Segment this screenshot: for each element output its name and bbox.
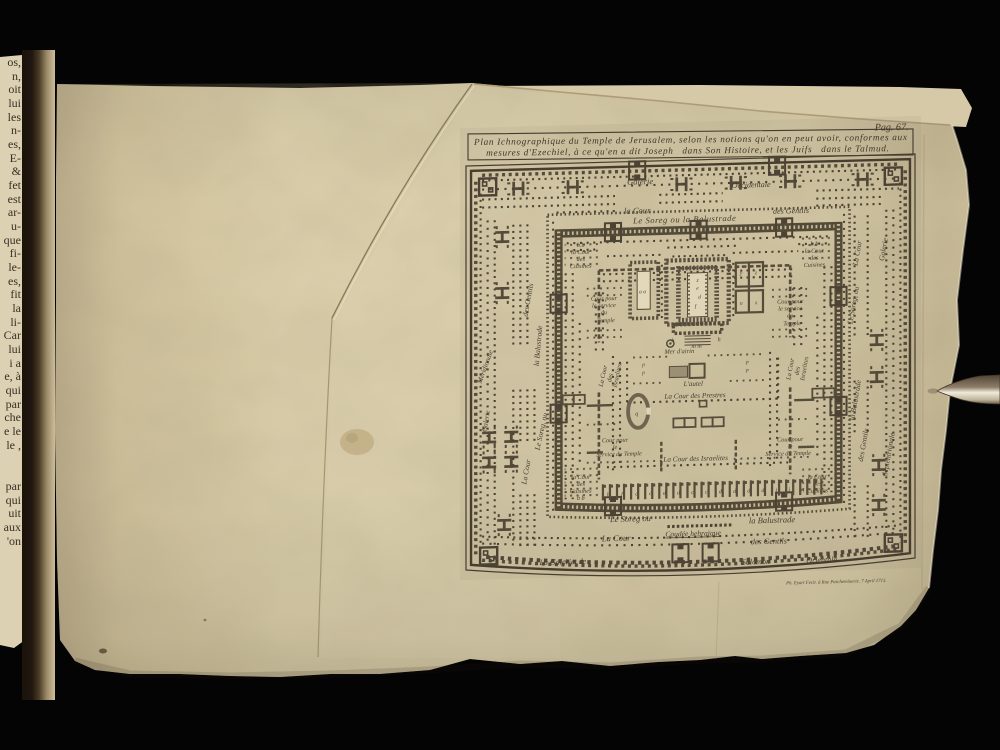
svg-text:Galerie: Galerie	[627, 176, 653, 187]
svg-text:es,: es,	[8, 274, 21, 288]
svg-text:le ,: le ,	[6, 438, 21, 452]
svg-text:par: par	[6, 397, 21, 411]
svg-text:x: x	[754, 300, 758, 306]
svg-text:e le: e le	[4, 424, 21, 438]
svg-text:es,: es,	[8, 137, 21, 151]
svg-text:Coudée hebraïque: Coudée hebraïque	[665, 528, 721, 538]
svg-text:les: les	[8, 110, 22, 124]
svg-text:a a: a a	[639, 289, 646, 295]
svg-text:p: p	[641, 362, 645, 368]
svg-text:qui: qui	[6, 493, 22, 507]
svg-text:aux: aux	[4, 520, 21, 534]
svg-text:Orientale: Orientale	[806, 555, 837, 565]
svg-text:des Gentils: des Gentils	[751, 536, 787, 546]
svg-text:'on: 'on	[7, 534, 21, 548]
svg-text:La Galerie de: La Galerie de	[538, 557, 586, 567]
svg-text:est: est	[8, 192, 22, 206]
svg-text:que: que	[4, 233, 21, 247]
svg-text:La Cour des Prestres: La Cour des Prestres	[663, 391, 725, 401]
svg-text:fet: fet	[8, 178, 21, 192]
svg-text:fit: fit	[10, 287, 21, 301]
svg-text:os,: os,	[7, 55, 21, 69]
svg-text:la: la	[12, 301, 21, 315]
svg-text:lui: lui	[8, 96, 21, 110]
svg-text:q: q	[635, 411, 638, 417]
svg-text:L'autel: L'autel	[682, 380, 703, 389]
svg-text:Service du Temple: Service du Temple	[765, 450, 811, 458]
svg-text:du: du	[601, 309, 607, 316]
svg-text:Salomon: Salomon	[742, 557, 770, 567]
svg-text:Service du Temple: Service du Temple	[596, 450, 642, 458]
svg-text:La Cour: La Cour	[601, 533, 631, 544]
svg-text:la Balustrade: la Balustrade	[749, 514, 795, 525]
svg-text:Occidentale: Occidentale	[732, 180, 771, 190]
svg-text:Pag. 67.: Pag. 67.	[874, 122, 909, 133]
svg-text:oit: oit	[8, 82, 21, 96]
svg-text:Mer d'airin: Mer d'airin	[663, 348, 694, 356]
svg-text:uit: uit	[8, 506, 21, 520]
svg-text:des Gentils: des Gentils	[773, 206, 809, 216]
svg-text:y: y	[739, 271, 743, 277]
svg-text:E-: E-	[10, 151, 21, 165]
svg-text:n-: n-	[11, 123, 21, 137]
svg-text:p: p	[745, 367, 749, 373]
svg-text:le-: le-	[8, 260, 21, 274]
svg-text:par: par	[6, 479, 21, 493]
svg-text:Cuisines: Cuisines	[570, 263, 592, 271]
svg-text:d: d	[698, 295, 701, 301]
svg-text:Cuisines: Cuisines	[804, 261, 826, 269]
svg-text:b b: b b	[577, 495, 585, 502]
svg-text:Car: Car	[4, 328, 21, 342]
svg-text:i a: i a	[9, 356, 21, 370]
svg-text:h: h	[718, 337, 721, 343]
svg-text:u: u	[740, 301, 743, 307]
svg-text:e, à: e, à	[4, 369, 21, 383]
svg-text:li-: li-	[10, 315, 21, 329]
svg-text:n,: n,	[12, 69, 21, 83]
svg-text:ar-: ar-	[8, 205, 21, 219]
svg-text:fi-: fi-	[10, 246, 21, 260]
svg-text:p: p	[745, 359, 749, 365]
svg-text:Temple: Temple	[783, 320, 801, 327]
svg-text:p: p	[641, 370, 645, 376]
svg-text:che: che	[4, 410, 21, 424]
svg-text:qui: qui	[6, 383, 22, 397]
svg-text:lui: lui	[8, 342, 21, 356]
svg-text:&: &	[12, 164, 22, 178]
svg-text:u-: u-	[11, 219, 21, 233]
